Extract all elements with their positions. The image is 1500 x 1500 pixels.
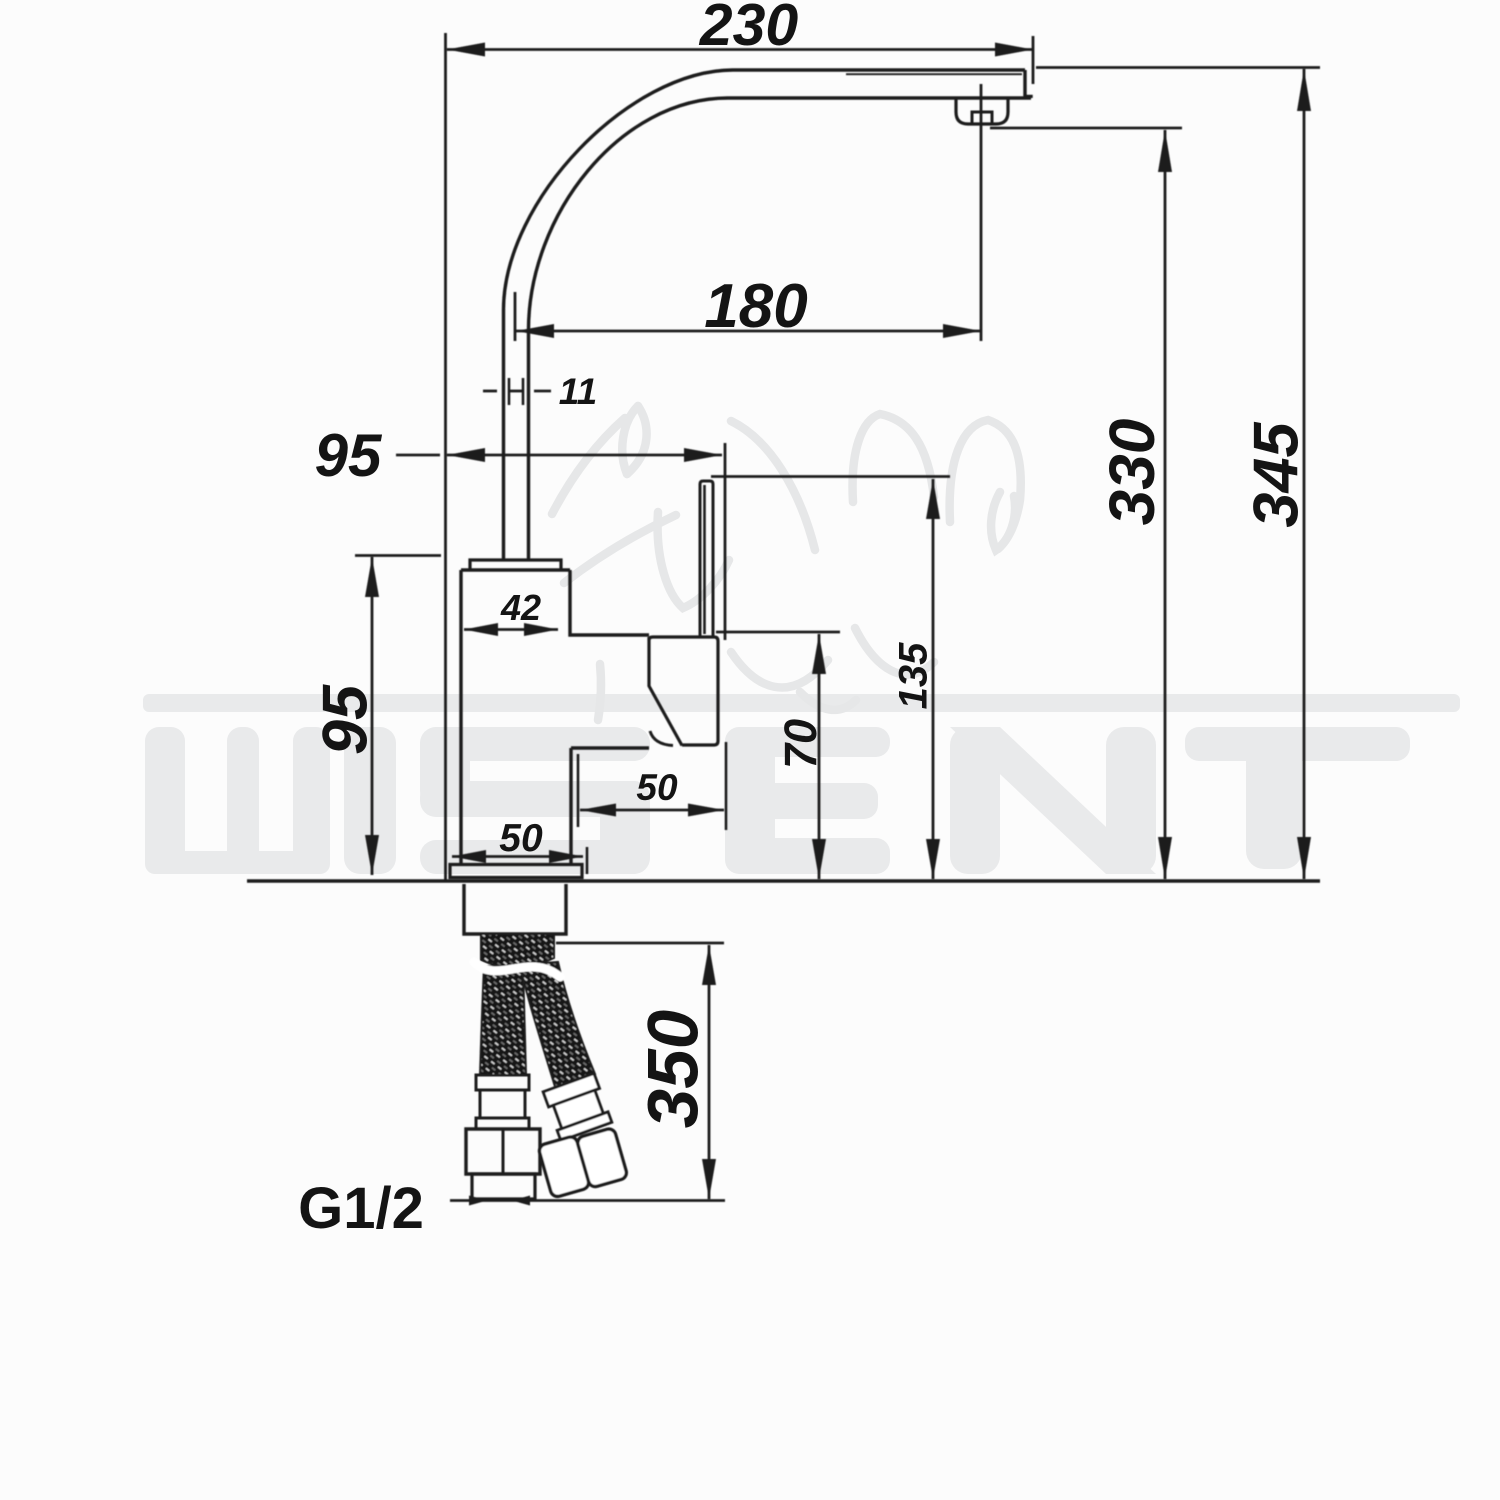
svg-text:42: 42	[500, 587, 541, 628]
svg-text:11: 11	[559, 371, 597, 412]
svg-text:95: 95	[311, 684, 381, 755]
svg-text:350: 350	[635, 1010, 714, 1128]
svg-text:95: 95	[315, 422, 383, 489]
svg-text:G1/2: G1/2	[298, 1176, 424, 1241]
svg-text:345: 345	[1242, 421, 1312, 527]
svg-text:330: 330	[1096, 419, 1168, 526]
svg-text:50: 50	[636, 767, 678, 808]
svg-text:230: 230	[699, 0, 799, 58]
svg-text:180: 180	[704, 272, 807, 341]
svg-text:135: 135	[891, 642, 935, 709]
svg-text:50: 50	[499, 817, 543, 860]
svg-text:70: 70	[775, 719, 826, 769]
